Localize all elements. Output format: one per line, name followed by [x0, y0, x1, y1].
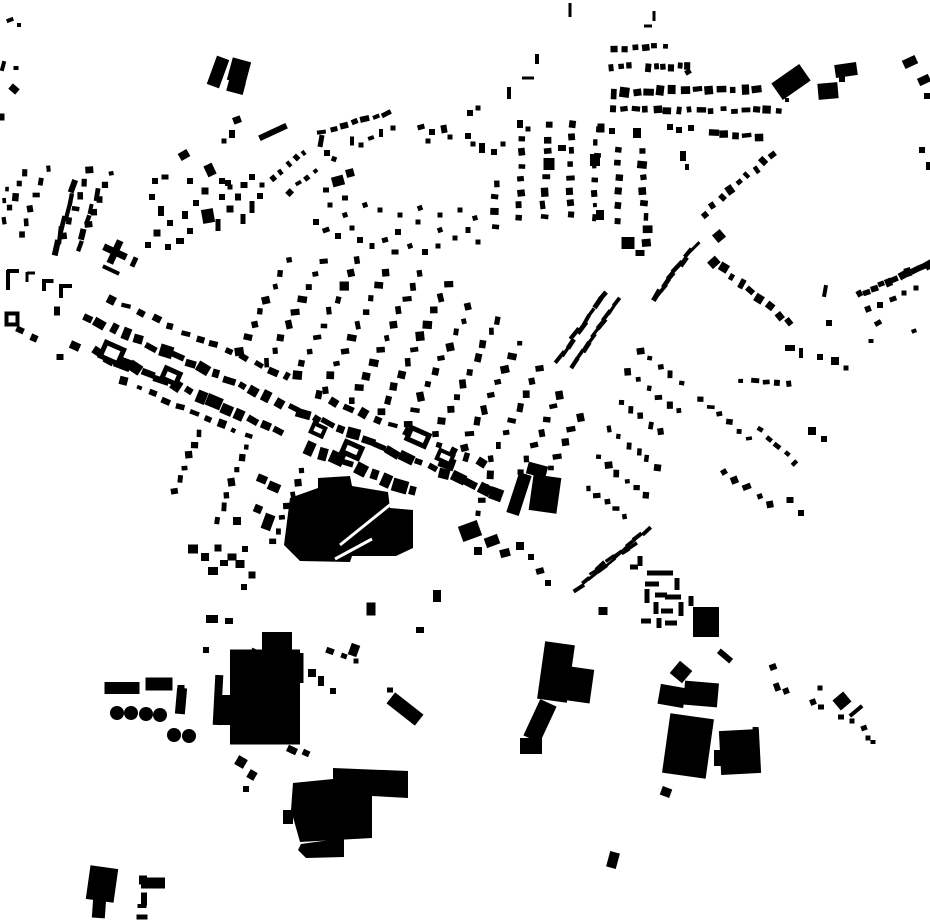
building-footprint — [544, 158, 555, 170]
building-footprint — [307, 349, 313, 355]
building-footprint — [544, 137, 551, 144]
building-footprint — [774, 380, 780, 386]
building-footprint — [517, 176, 524, 182]
building-footprint — [294, 479, 302, 487]
building-footprint — [322, 226, 330, 233]
building-footprint — [381, 237, 388, 243]
building-footprint — [475, 456, 487, 468]
building-footprint — [250, 201, 255, 213]
building-footprint — [92, 317, 107, 331]
building-footprint — [730, 87, 736, 93]
building-footprint — [667, 124, 673, 130]
building-footprint — [591, 190, 598, 197]
building-footprint — [15, 326, 25, 335]
building-footprint — [158, 344, 174, 360]
building-footprint — [349, 397, 355, 404]
building-footprint — [416, 270, 422, 277]
building-footprint — [604, 461, 613, 469]
building-footprint — [541, 187, 549, 197]
building-footprint — [543, 417, 551, 423]
building-footprint — [175, 403, 185, 411]
building-footprint — [347, 268, 356, 277]
building-footprint — [530, 442, 539, 449]
building-footprint — [476, 106, 481, 111]
building-footprint — [808, 427, 816, 435]
building-footprint — [651, 289, 662, 303]
building-footprint — [742, 84, 750, 95]
building-footprint — [254, 360, 264, 369]
building-footprint — [402, 296, 412, 302]
building-footprint — [757, 493, 764, 500]
building-footprint — [342, 212, 348, 218]
building-footprint — [799, 348, 803, 358]
building-footprint — [454, 394, 460, 400]
building-footprint — [839, 74, 845, 82]
building-footprint — [184, 386, 194, 396]
building-footprint — [685, 164, 689, 170]
building-footprint — [230, 427, 236, 433]
building-footprint — [507, 417, 516, 423]
building-footprint — [592, 214, 597, 221]
building-footprint — [782, 687, 790, 695]
building-footprint — [6, 17, 14, 23]
building-footprint — [655, 395, 663, 400]
building-footprint — [746, 436, 752, 440]
building-footprint — [45, 279, 54, 283]
building-footprint — [517, 189, 525, 197]
building-footprint — [158, 206, 164, 216]
building-footprint — [569, 357, 579, 370]
building-footprint — [622, 514, 627, 520]
building-footprint — [342, 404, 354, 414]
building-footprint — [361, 372, 371, 381]
building-footprint — [545, 580, 551, 586]
building-footprint — [709, 129, 719, 136]
building-footprint — [491, 194, 499, 200]
building-footprint — [261, 513, 276, 531]
building-footprint — [633, 128, 641, 138]
building-footprint — [462, 452, 470, 462]
building-footprint — [675, 578, 680, 590]
building-footprint — [354, 384, 363, 391]
building-footprint — [86, 865, 118, 903]
building-footprint — [229, 130, 235, 138]
building-footprint — [57, 354, 64, 360]
building-footprint — [272, 347, 278, 354]
building-footprint — [515, 201, 521, 208]
building-footprint — [215, 545, 222, 552]
building-footprint — [433, 590, 441, 602]
building-footprint — [663, 107, 672, 114]
building-footprint — [520, 738, 542, 754]
building-footprint — [460, 443, 469, 452]
building-footprint — [345, 168, 355, 178]
building-footprint — [809, 698, 817, 706]
building-footprint — [133, 334, 144, 345]
building-footprint — [785, 345, 795, 351]
building-footprint — [877, 280, 885, 287]
building-footprint — [529, 474, 562, 514]
building-footprint — [202, 188, 209, 195]
building-footprint — [914, 286, 919, 291]
building-footprint — [219, 178, 225, 184]
building-footprint — [566, 666, 594, 703]
building-footprint — [765, 435, 773, 443]
building-footprint — [408, 485, 417, 495]
building-footprint — [548, 466, 554, 471]
building-footprint — [308, 669, 316, 677]
building-footprint — [630, 565, 638, 570]
building-footprint — [216, 219, 221, 231]
building-footprint — [342, 196, 348, 201]
building-footprint — [822, 285, 828, 298]
building-footprint — [120, 327, 132, 341]
building-footprint — [286, 257, 292, 263]
building-footprint — [195, 361, 211, 377]
building-footprint — [12, 193, 19, 202]
building-footprint — [359, 143, 364, 148]
building-footprint — [246, 769, 257, 781]
building-footprint — [871, 740, 876, 744]
building-footprint — [217, 418, 228, 429]
building-footprint — [279, 515, 285, 520]
building-footprint — [491, 149, 497, 155]
building-footprint — [369, 468, 379, 480]
building-footprint — [136, 308, 146, 317]
building-footprint — [272, 426, 284, 436]
building-footprint — [38, 178, 44, 186]
building-footprint — [642, 106, 648, 113]
building-footprint — [628, 406, 633, 414]
building-footprint — [638, 556, 643, 566]
building-footprint — [478, 498, 486, 503]
building-footprint — [346, 427, 362, 441]
building-footprint — [609, 128, 615, 134]
building-footprint — [791, 459, 799, 467]
building-footprint — [347, 334, 357, 342]
building-footprint — [561, 438, 569, 446]
tank-footprint — [167, 728, 181, 742]
building-footprint — [766, 500, 774, 508]
building-footprint — [625, 479, 630, 484]
building-footprint — [233, 517, 241, 525]
building-footprint — [407, 243, 413, 249]
building-footprint — [429, 129, 435, 135]
building-footprint — [68, 179, 78, 194]
building-footprint — [69, 340, 81, 351]
building-footprint — [676, 127, 682, 133]
building-footprint — [568, 133, 575, 140]
building-footprint — [569, 147, 574, 154]
building-footprint — [874, 319, 883, 327]
building-footprint — [476, 240, 481, 245]
building-footprint — [500, 365, 510, 374]
building-footprint — [326, 371, 334, 379]
building-footprint — [484, 534, 501, 548]
building-footprint — [283, 371, 291, 380]
building-footprint — [681, 86, 690, 94]
building-footprint — [196, 336, 205, 344]
building-footprint — [523, 390, 530, 398]
figure-ground-map — [0, 0, 930, 924]
building-footprint — [373, 416, 382, 425]
building-footprint — [755, 134, 764, 142]
building-footprint — [208, 567, 218, 575]
building-footprint — [817, 354, 823, 360]
building-footprint — [318, 676, 324, 686]
building-footprint — [838, 715, 844, 720]
building-footprint — [185, 451, 193, 459]
building-footprint — [378, 208, 383, 213]
building-footprint — [453, 328, 459, 335]
building-footprint — [76, 240, 84, 252]
building-footprint — [745, 285, 755, 295]
building-footprint — [339, 122, 348, 130]
building-footprint — [658, 364, 664, 370]
building-footprint — [753, 293, 765, 305]
building-footprint — [596, 210, 604, 220]
building-footprint — [187, 178, 193, 184]
building-footprint — [539, 200, 545, 209]
building-footprint — [488, 455, 494, 462]
building-footprint — [651, 43, 657, 48]
building-footprint — [368, 358, 379, 367]
building-footprint — [232, 408, 245, 422]
building-footprint — [149, 194, 155, 200]
building-footprint — [106, 294, 117, 305]
building-footprint — [619, 400, 624, 405]
building-footprint — [558, 145, 566, 151]
building-footprint — [222, 139, 227, 144]
building-footprint — [46, 165, 51, 172]
building-footprint — [384, 335, 390, 342]
building-footprint — [410, 407, 420, 413]
building-footprint — [295, 653, 304, 683]
building-footprint — [232, 115, 242, 124]
building-footprint — [0, 61, 6, 72]
building-footprint — [697, 397, 703, 402]
building-footprint — [152, 313, 163, 323]
building-footprint — [340, 282, 349, 291]
building-footprint — [731, 109, 738, 114]
building-footprint — [751, 85, 762, 93]
building-footprint — [758, 156, 768, 166]
building-footprint — [325, 647, 335, 655]
building-footprint — [708, 201, 716, 210]
building-footprint — [526, 127, 531, 132]
building-footprint — [554, 350, 566, 364]
building-footprint — [654, 63, 659, 69]
building-footprint — [335, 233, 341, 239]
building-footprint — [33, 193, 40, 198]
building-footprint — [148, 389, 157, 397]
building-footprint — [363, 309, 369, 315]
building-footprint — [176, 238, 184, 244]
building-footprint — [620, 106, 628, 112]
building-footprint — [593, 203, 597, 207]
building-footprint — [182, 211, 188, 219]
building-footprint — [636, 347, 645, 355]
building-footprint — [821, 436, 827, 442]
building-footprint — [303, 440, 317, 457]
building-footprint — [374, 282, 383, 289]
building-footprint — [437, 355, 445, 361]
building-footprint — [141, 368, 156, 379]
building-footprint — [82, 313, 93, 323]
building-footprint — [785, 98, 789, 102]
building-footprint — [866, 736, 871, 741]
building-footprint — [870, 285, 879, 293]
building-footprint — [480, 405, 488, 415]
building-footprint — [775, 311, 785, 322]
building-footprint — [220, 560, 228, 566]
building-footprint — [108, 171, 113, 176]
building-footprint — [228, 554, 237, 561]
building-footprint — [787, 497, 794, 503]
building-footprint — [593, 139, 597, 145]
building-footprint — [552, 453, 562, 459]
building-footprint — [92, 898, 106, 919]
building-footprint — [382, 269, 390, 277]
building-footprint — [19, 231, 25, 237]
building-footprint — [251, 321, 259, 329]
building-footprint — [247, 385, 260, 398]
building-footprint — [479, 340, 487, 349]
building-footprint — [391, 126, 396, 131]
building-footprint — [367, 135, 374, 141]
building-footprint — [737, 278, 746, 289]
building-footprint — [663, 44, 668, 49]
building-footprint — [676, 408, 681, 413]
building-footprint — [77, 192, 83, 199]
building-footprint — [78, 228, 87, 240]
building-footprint — [786, 380, 792, 387]
building-footprint — [461, 476, 478, 490]
building-footprint — [317, 447, 329, 462]
building-footprint — [626, 442, 631, 449]
building-footprint — [214, 517, 220, 525]
building-footprint — [273, 397, 285, 409]
building-footprint — [494, 379, 501, 385]
building-footprint — [712, 229, 726, 243]
building-footprint — [453, 236, 458, 241]
building-footprint — [249, 174, 255, 180]
building-footprint — [538, 429, 545, 437]
building-footprint — [219, 194, 225, 200]
building-footprint — [474, 547, 482, 555]
building-footprint — [676, 106, 682, 114]
building-footprint — [241, 584, 247, 590]
building-footprint — [626, 62, 632, 68]
building-footprint — [440, 125, 447, 134]
building-footprint — [189, 409, 200, 417]
building-footprint — [693, 86, 703, 92]
building-footprint — [742, 483, 752, 491]
building-footprint — [689, 596, 694, 606]
building-footprint — [283, 810, 293, 824]
building-footprint — [717, 649, 733, 664]
building-footprint — [494, 180, 500, 187]
building-footprint — [260, 420, 272, 431]
building-footprint — [644, 455, 649, 463]
building-footprint — [392, 250, 399, 255]
building-footprint — [175, 688, 187, 715]
building-footprint — [473, 416, 480, 425]
building-footprint — [410, 347, 419, 353]
building-footprint — [389, 321, 398, 329]
building-footprint — [641, 239, 651, 247]
building-footprint — [52, 239, 61, 256]
building-footprint — [569, 120, 577, 128]
building-footprint — [301, 150, 307, 156]
building-footprint — [243, 333, 253, 341]
building-footprint — [576, 413, 585, 423]
building-footprint — [523, 699, 556, 743]
building-footprint — [193, 200, 199, 206]
building-footprint — [506, 472, 531, 516]
building-footprint — [633, 485, 639, 490]
building-footprint — [154, 230, 161, 237]
building-footprint — [387, 688, 393, 693]
building-footprint — [384, 395, 392, 405]
building-footprint — [203, 647, 209, 653]
building-footprint — [610, 105, 616, 112]
building-footprint — [298, 359, 305, 367]
building-footprint — [517, 120, 523, 128]
building-footprint — [784, 450, 791, 457]
building-footprint — [645, 582, 659, 587]
building-footprint — [105, 682, 140, 694]
building-footprint — [378, 408, 386, 415]
building-footprint — [737, 429, 742, 434]
building-footprint — [191, 442, 198, 449]
building-footprint — [350, 226, 355, 231]
building-footprint — [206, 615, 218, 623]
building-footprint — [395, 306, 402, 315]
building-footprint — [273, 283, 279, 289]
building-footprint — [204, 415, 213, 423]
building-footprint — [221, 502, 226, 511]
building-footprint — [768, 150, 777, 159]
building-footprint — [860, 725, 867, 732]
building-footprint — [201, 553, 209, 561]
building-footprint — [586, 486, 591, 492]
building-footprint — [242, 546, 248, 552]
building-footprint — [225, 180, 231, 186]
building-footprint — [303, 174, 310, 181]
building-footprint — [688, 125, 694, 131]
building-footprint — [26, 205, 33, 213]
building-footprint — [849, 704, 864, 717]
building-footprint — [269, 539, 276, 544]
building-footprint — [313, 334, 322, 340]
building-footprint — [902, 55, 918, 69]
building-footprint — [613, 470, 619, 478]
building-footprint — [246, 415, 259, 426]
building-footprint — [139, 876, 147, 885]
building-footprint — [535, 365, 544, 372]
building-footprint — [355, 321, 361, 330]
building-footprint — [701, 211, 709, 219]
building-footprint — [518, 164, 525, 169]
building-footprint — [181, 466, 187, 471]
building-footprint — [102, 264, 120, 275]
building-footprint — [844, 366, 849, 371]
building-footprint — [668, 64, 674, 71]
building-footprint — [17, 181, 22, 187]
building-footprint — [219, 403, 234, 417]
building-footprint — [416, 391, 425, 402]
